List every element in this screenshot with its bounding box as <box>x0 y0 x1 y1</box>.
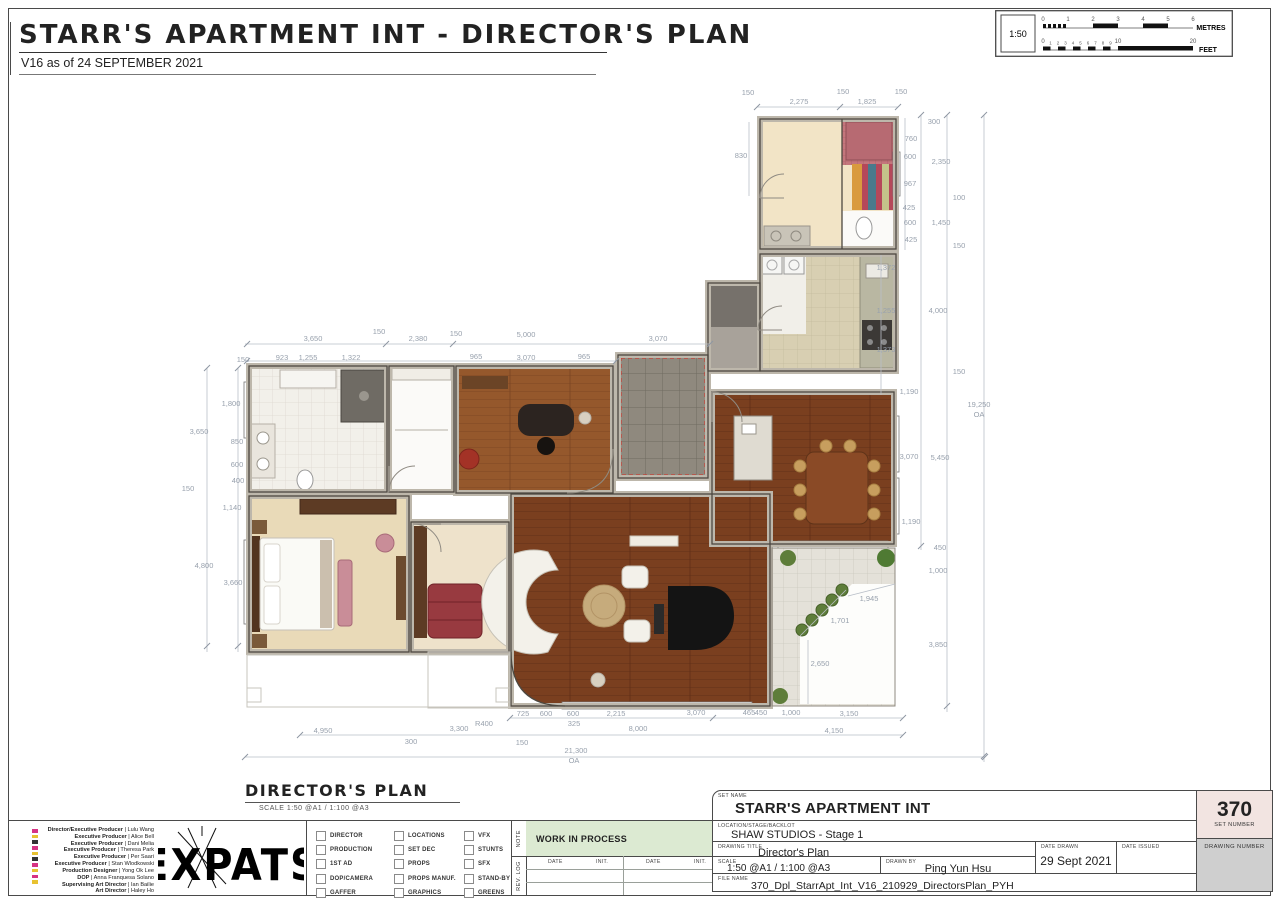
revlog-table: DATEINIT.DATEINIT. <box>526 856 720 895</box>
sheet-header: STARR'S APARTMENT INT - DIRECTOR'S PLAN … <box>10 22 607 75</box>
revlog-header: DATE <box>548 859 563 865</box>
red-armchair <box>459 449 479 469</box>
headboard <box>251 536 260 632</box>
date-drawn-cell: DATE DRAWN 29 Sept 2021 <box>1035 842 1116 874</box>
dimension-label: 1,255 <box>877 306 896 315</box>
dimension-label: 2,380 <box>409 334 428 343</box>
dimension-label: 3,070 <box>517 353 536 362</box>
credit-line: DOP | Anna Franquesa Solano <box>36 875 154 882</box>
daybed <box>428 584 482 638</box>
note-label: NOTE <box>516 830 522 848</box>
checkbox[interactable] <box>464 888 474 898</box>
dimension-label: 5,000 <box>517 330 536 339</box>
adjacent-outline <box>247 652 510 708</box>
sheet-title: STARR'S APARTMENT INT - DIRECTOR'S PLAN <box>19 22 607 53</box>
pink-chair <box>376 534 394 552</box>
dimension-label: 1,190 <box>902 517 921 526</box>
checkbox[interactable] <box>316 845 326 855</box>
expats-logo: EXPATS <box>158 824 304 892</box>
dimension-label: 150 <box>895 87 908 96</box>
distribution-item-props-manuf-: PROPS MANUF. <box>394 872 456 886</box>
dryer <box>784 256 804 274</box>
checkbox[interactable] <box>316 874 326 884</box>
dimension-label: 1,190 <box>900 387 919 396</box>
dimension-label: 1,373 <box>877 345 896 354</box>
location: SHAW STUDIOS - Stage 1 <box>713 829 1196 841</box>
dimension-label: 150 <box>953 241 966 250</box>
dimension-label: 150 <box>742 88 755 97</box>
dimension-label: 150 <box>373 327 386 336</box>
dimension-label: 2,215 <box>607 709 626 718</box>
checkbox[interactable] <box>464 845 474 855</box>
dimension-label: 425 <box>905 235 918 244</box>
checkbox-label: GREENS <box>478 890 505 896</box>
distribution-item-director: DIRECTOR <box>316 829 373 843</box>
dimension-label: 1,450 <box>932 218 951 227</box>
dimension-label: 150 <box>516 738 529 747</box>
checkbox[interactable] <box>394 874 404 884</box>
distribution-item-sfx: SFX <box>464 857 510 871</box>
distribution-item-stand-by: STAND-BY <box>464 872 510 886</box>
dimension-label: 3,070 <box>687 708 706 717</box>
dimension-label: 965 <box>578 352 591 361</box>
revlog-cell: REV. LOG <box>511 856 527 895</box>
dimension-label: OA <box>569 756 580 765</box>
title-block: SET NAME STARR'S APARTMENT INT LOCATION/… <box>712 790 1273 892</box>
distribution-column: DIRECTORPRODUCTION1ST ADDOP/CAMERAGAFFER <box>316 829 373 900</box>
checkbox-label: STUNTS <box>478 847 503 853</box>
dimension-label: 19,250 <box>968 400 991 409</box>
shower <box>846 122 892 160</box>
checkbox-label: SET DEC <box>408 847 435 853</box>
credit-line: Supervising Art Director | Ian Bailie <box>36 882 154 889</box>
washer <box>762 256 782 274</box>
credit-line: Executive Producer | Alice Bell <box>36 834 154 841</box>
drawing-number-cell: DRAWING NUMBER <box>1196 839 1272 891</box>
bath-shelf <box>280 370 336 388</box>
distribution-item-set-dec: SET DEC <box>394 843 456 857</box>
credit-line: Executive Producer | Theresa Park <box>36 847 154 854</box>
metres-label: METRES <box>1196 25 1226 32</box>
dimension-label: 150 <box>450 329 463 338</box>
set-number: 370 <box>1197 798 1272 822</box>
dimension-label: 1,000 <box>782 708 801 717</box>
checkbox[interactable] <box>464 874 474 884</box>
piano-bench <box>654 604 664 634</box>
revlog-label: REV. LOG <box>516 861 522 891</box>
checkbox-label: SFX <box>478 861 490 867</box>
set-name: STARR'S APARTMENT INT <box>713 799 1196 817</box>
dimension-label: 300 <box>405 737 418 746</box>
dimension-label: 150 <box>237 355 250 364</box>
dimension-label: 3,300 <box>450 724 469 733</box>
tick-label: 20 <box>1190 39 1197 45</box>
dimension-label: 1,372 <box>877 263 896 272</box>
dimension-label: 400 <box>232 476 245 485</box>
distribution-item-dop-camera: DOP/CAMERA <box>316 872 373 886</box>
dimension-label: 3,150 <box>840 709 859 718</box>
ottoman <box>591 673 605 687</box>
room-living <box>511 494 770 706</box>
dimension-label: 965 <box>470 352 483 361</box>
nightstand <box>251 520 267 534</box>
dimension-label: 3,650 <box>304 334 323 343</box>
scale-ratio: 1:50 <box>1009 29 1027 39</box>
drawn-by-cell: DRAWN BY Ping Yun Hsu <box>880 857 1035 874</box>
plan-caption-scale: SCALE 1:50 @A1 / 1:100 @A3 <box>245 803 475 812</box>
dimension-label: 2,650 <box>811 659 830 668</box>
distribution-column: LOCATIONSSET DECPROPSPROPS MANUF.GRAPHIC… <box>394 829 456 900</box>
dimension-label: R400 <box>475 719 493 728</box>
distribution-item-graphics: GRAPHICS <box>394 886 456 900</box>
file-name-cell: FILE NAME 370_Dpl_StarrApt_Int_V16_21092… <box>713 874 1196 891</box>
distribution-item-gaffer: GAFFER <box>316 886 373 900</box>
credit-line: Art Director | Haley Ho <box>36 888 154 895</box>
checkbox-label: PROPS <box>408 861 430 867</box>
credits-list: Director/Executive Producer | Lulu WangE… <box>36 827 154 895</box>
dimension-label: 4,000 <box>929 306 948 315</box>
toilet <box>856 217 872 239</box>
dimension-label: 4,150 <box>825 726 844 735</box>
credit-line: Executive Producer | Per Saari <box>36 854 154 861</box>
dimension-label: 3,070 <box>900 452 919 461</box>
checkbox[interactable] <box>394 831 404 841</box>
checkbox-label: VFX <box>478 833 490 839</box>
desk-chair <box>537 437 555 455</box>
side-table <box>579 412 591 424</box>
dimension-label: 3,850 <box>929 640 948 649</box>
credit-line: Executive Producer | Dani Melia <box>36 841 154 848</box>
round-rug <box>583 585 625 627</box>
checkbox-label: LOCATIONS <box>408 833 445 839</box>
dimension-label: 100 <box>953 193 966 202</box>
dimension-label: 5,450 <box>931 453 950 462</box>
work-in-process: WORK IN PROCESS <box>526 821 720 857</box>
dimension-label: 1,701 <box>831 616 850 625</box>
dimension-label: 450 <box>755 708 768 717</box>
dimension-label: 3,070 <box>649 334 668 343</box>
dimension-label: 830 <box>735 151 748 160</box>
bench <box>338 560 352 626</box>
distribution-item-props: PROPS <box>394 857 456 871</box>
dining-table <box>806 452 868 524</box>
location-cell: LOCATION/STAGE/BACKLOT SHAW STUDIOS - St… <box>713 821 1196 842</box>
plan-caption: DIRECTOR'S PLAN SCALE 1:50 @A1 / 1:100 @… <box>245 781 475 812</box>
dimension-label: 1,140 <box>223 503 242 512</box>
dimension-label: OA <box>974 410 985 419</box>
distribution-item-1st-ad: 1ST AD <box>316 857 373 871</box>
dressing-wardrobe <box>413 526 427 638</box>
dimension-label: 4,950 <box>314 726 333 735</box>
credit-line: Production Designer | Yong Ok Lee <box>36 868 154 875</box>
dimension-label: 150 <box>837 87 850 96</box>
checkbox[interactable] <box>464 831 474 841</box>
feet-bar <box>1043 46 1193 51</box>
date-issued-cell: DATE ISSUED <box>1116 842 1196 874</box>
dimension-label: 600 <box>904 218 917 227</box>
note-cell: NOTE <box>511 821 527 857</box>
revlog-header: INIT. <box>694 859 706 865</box>
footer: Director/Executive Producer | Lulu WangE… <box>8 820 713 895</box>
room-closet <box>389 366 454 492</box>
dimension-label: 325 <box>568 719 581 728</box>
credit-line: Director/Executive Producer | Lulu Wang <box>36 827 154 834</box>
distribution-item-greens: GREENS <box>464 886 510 900</box>
checkbox-label: GAFFER <box>330 890 356 896</box>
plant <box>772 688 788 704</box>
dimension-label: 600 <box>567 709 580 718</box>
scale-bar: 1:50 METRES FEET 0123456 01020123456789 <box>995 10 1233 57</box>
checkbox-label: GRAPHICS <box>408 890 441 896</box>
checkbox-label: DIRECTOR <box>330 833 363 839</box>
checkbox-label: STAND-BY <box>478 876 510 882</box>
plant <box>780 550 796 566</box>
dimension-label: 1,825 <box>858 97 877 106</box>
checkbox[interactable] <box>464 859 474 869</box>
dimension-label: 150 <box>182 484 195 493</box>
dimension-label: 1,945 <box>860 594 879 603</box>
dimension-label: 923 <box>276 353 289 362</box>
checkbox[interactable] <box>394 888 404 898</box>
checkbox[interactable] <box>394 845 404 855</box>
checkbox-label: PROPS MANUF. <box>408 876 456 882</box>
dimension-label: 967 <box>904 179 917 188</box>
dimension-label: 3,650 <box>190 427 209 436</box>
revlog-header: DATE <box>646 859 661 865</box>
checkbox[interactable] <box>316 888 326 898</box>
dimension-label: 600 <box>231 460 244 469</box>
drawing-title-cell: DRAWING TITLE Director's Plan <box>713 842 1035 857</box>
plant <box>877 549 895 567</box>
dimension-label: 450 <box>934 543 947 552</box>
dimension-label: 725 <box>517 709 530 718</box>
dimension-label: 425 <box>903 203 916 212</box>
credenza <box>462 376 508 389</box>
console <box>630 536 678 546</box>
dimension-label: 760 <box>905 134 918 143</box>
wardrobe <box>300 499 396 514</box>
dimension-label: 21,300 <box>565 746 588 755</box>
dimension-label: 600 <box>904 152 917 161</box>
distribution-item-stunts: STUNTS <box>464 843 510 857</box>
distribution-column: VFXSTUNTSSFXSTAND-BYGREENS <box>464 829 510 900</box>
dimension-label: 850 <box>231 437 244 446</box>
set-name-cell: SET NAME STARR'S APARTMENT INT <box>713 791 1196 821</box>
dimension-label: 600 <box>540 709 553 718</box>
dimension-label: 465 <box>743 708 756 717</box>
date-drawn: 29 Sept 2021 <box>1036 854 1116 868</box>
checkbox-label: 1ST AD <box>330 861 352 867</box>
dimension-label: 4,800 <box>195 561 214 570</box>
dimension-label: 1,800 <box>222 399 241 408</box>
plan-caption-title: DIRECTOR'S PLAN <box>245 781 460 803</box>
feet-label: FEET <box>1199 47 1218 54</box>
room-lift-lobby <box>618 355 708 478</box>
checkbox[interactable] <box>316 831 326 841</box>
scale-value: 1:50 @A1 / 1:100 @A3 <box>713 863 880 874</box>
armchair <box>624 620 650 642</box>
logo-text: EXPATS <box>158 839 304 890</box>
credits-panel: Director/Executive Producer | Lulu WangE… <box>8 821 307 895</box>
sheet-version: V16 as of 24 SEPTEMBER 2021 <box>19 53 596 75</box>
dimension-label: 2,350 <box>932 157 951 166</box>
file-name: 370_Dpl_StarrApt_Int_V16_210929_Director… <box>713 880 1196 892</box>
set-number-cell: 370 SET NUMBER <box>1196 791 1272 839</box>
armchair <box>622 566 648 588</box>
toilet-main <box>297 470 313 490</box>
floor-plan: 1502,2751501,8251508303007606002,3509671… <box>0 0 1280 904</box>
dimension-label: 150 <box>953 367 966 376</box>
dimension-label: 1,255 <box>299 353 318 362</box>
checkbox[interactable] <box>316 859 326 869</box>
revlog-header: INIT. <box>596 859 608 865</box>
dimension-label: 1,000 <box>929 566 948 575</box>
distribution-item-production: PRODUCTION <box>316 843 373 857</box>
tick-label: 10 <box>1115 39 1122 45</box>
distribution-item-vfx: VFX <box>464 829 510 843</box>
nightstand <box>251 634 267 648</box>
scale-cell: SCALE 1:50 @A1 / 1:100 @A3 <box>713 857 880 874</box>
desk <box>518 404 574 436</box>
checkbox-label: DOP/CAMERA <box>330 876 373 882</box>
closet-shelf <box>392 368 451 380</box>
checkbox[interactable] <box>394 859 404 869</box>
distribution-panel: DIRECTORPRODUCTION1ST ADDOP/CAMERAGAFFER… <box>306 821 512 895</box>
distribution-item-locations: LOCATIONS <box>394 829 456 843</box>
credit-line: Executive Producer | Stan Wlodkowski <box>36 861 154 868</box>
dimension-label: 2,275 <box>790 97 809 106</box>
note-panel: NOTE WORK IN PROCESS REV. LOG DATEINIT.D… <box>511 821 720 895</box>
dimension-label: 1,322 <box>342 353 361 362</box>
checkbox-label: PRODUCTION <box>330 847 372 853</box>
dimension-label: 8,000 <box>629 724 648 733</box>
dimension-label: 3,660 <box>224 578 243 587</box>
dimension-label: 300 <box>928 117 941 126</box>
